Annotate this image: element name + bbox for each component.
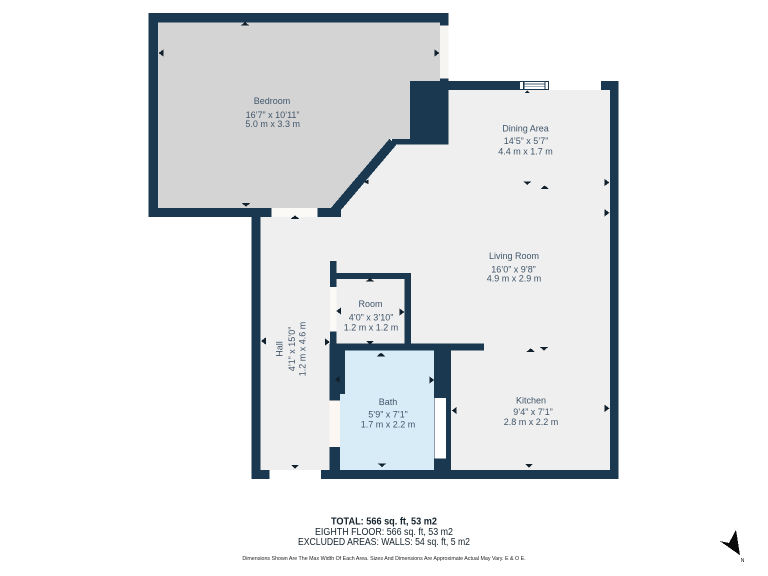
svg-text:5’9” x 7’1”: 5’9” x 7’1” (368, 410, 408, 420)
svg-text:4.9 m x 2.9 m: 4.9 m x 2.9 m (487, 273, 542, 283)
svg-text:1.7 m x 2.2 m: 1.7 m x 2.2 m (361, 420, 416, 430)
svg-text:1.2 m x 1.2 m: 1.2 m x 1.2 m (344, 322, 399, 332)
svg-text:4.4 m x 1.7 m: 4.4 m x 1.7 m (498, 147, 553, 157)
svg-text:4’0” x 3’10”: 4’0” x 3’10” (349, 313, 394, 323)
svg-text:Bath: Bath (379, 397, 398, 407)
svg-text:2.8 m x 2.2 m: 2.8 m x 2.2 m (504, 417, 559, 427)
svg-text:Room: Room (358, 299, 382, 309)
svg-text:Bedroom: Bedroom (254, 96, 291, 106)
svg-text:Kitchen: Kitchen (516, 396, 546, 406)
svg-text:9’4” x 7’1”: 9’4” x 7’1” (513, 407, 553, 417)
svg-text:EXCLUDED AREAS: WALLS: 54 sq.: EXCLUDED AREAS: WALLS: 54 sq. ft, 5 m2 (298, 537, 470, 548)
svg-text:Living Room: Living Room (489, 251, 539, 261)
svg-text:N: N (741, 558, 745, 564)
svg-text:1.2 m x 4.6 m: 1.2 m x 4.6 m (298, 322, 308, 377)
svg-text:4’1” x 15’0”: 4’1” x 15’0” (287, 327, 297, 372)
svg-text:Dining Area: Dining Area (502, 124, 549, 134)
svg-text:5.0 m x 3.3 m: 5.0 m x 3.3 m (245, 119, 300, 129)
svg-text:Dimensions Shown Are The Max W: Dimensions Shown Are The Max Width Of Ea… (242, 556, 525, 562)
svg-text:14’5” x 5’7”: 14’5” x 5’7” (504, 136, 549, 146)
svg-text:Hall: Hall (274, 341, 284, 357)
